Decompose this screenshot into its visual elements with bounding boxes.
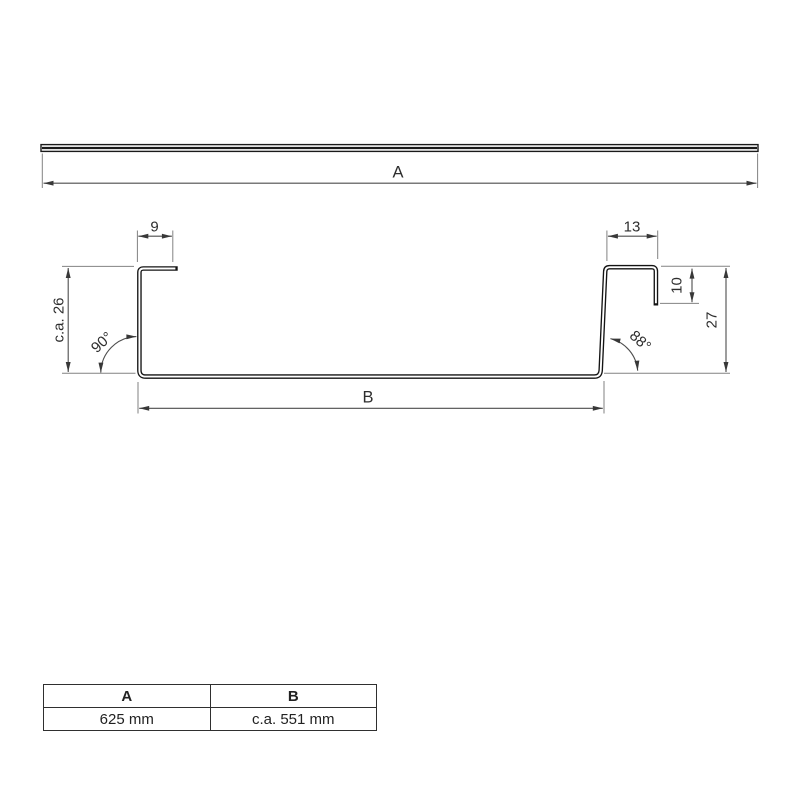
table-header-row: A B — [44, 685, 377, 708]
dim-label-9: 9 — [150, 219, 158, 236]
sheet-top-view — [41, 145, 758, 152]
profile-drawing-canvas: A 9 c.a. 26 90° — [0, 0, 800, 800]
table-value-row: 625 mm c.a. 551 mm — [44, 708, 377, 731]
dim-left-lip-9: 9 — [137, 219, 172, 263]
dimension-table: A B 625 mm c.a. 551 mm — [43, 684, 377, 731]
dim-label-a: A — [392, 164, 403, 182]
dim-right-height-27: 27 — [604, 268, 730, 373]
dim-label-b: B — [362, 389, 373, 407]
dim-label-ca26: c.a. 26 — [51, 297, 68, 342]
dim-label-13: 13 — [624, 219, 641, 236]
angle-right-88: 88° — [610, 327, 654, 370]
dim-right-flange-13: 13 — [607, 219, 658, 262]
dim-right-lip-10: 10 — [660, 266, 730, 303]
technical-drawing-page: A 9 c.a. 26 90° — [0, 0, 800, 800]
profile-sheet-outer — [139, 267, 656, 376]
table-header-b: B — [210, 685, 377, 708]
profile-sheet-inner — [139, 267, 656, 376]
profile-outline — [139, 267, 656, 376]
dim-overall-width-A: A — [42, 154, 757, 189]
dim-label-27: 27 — [704, 312, 721, 329]
table-header-a: A — [44, 685, 211, 708]
dim-base-width-B: B — [138, 381, 604, 414]
angle-label-90: 90° — [88, 329, 116, 357]
angle-left-90: 90° — [88, 329, 137, 373]
table-value-a: 625 mm — [44, 708, 211, 731]
table-value-b: c.a. 551 mm — [210, 708, 377, 731]
dim-left-height-ca26: c.a. 26 — [51, 266, 136, 373]
dim-label-10: 10 — [669, 277, 686, 294]
